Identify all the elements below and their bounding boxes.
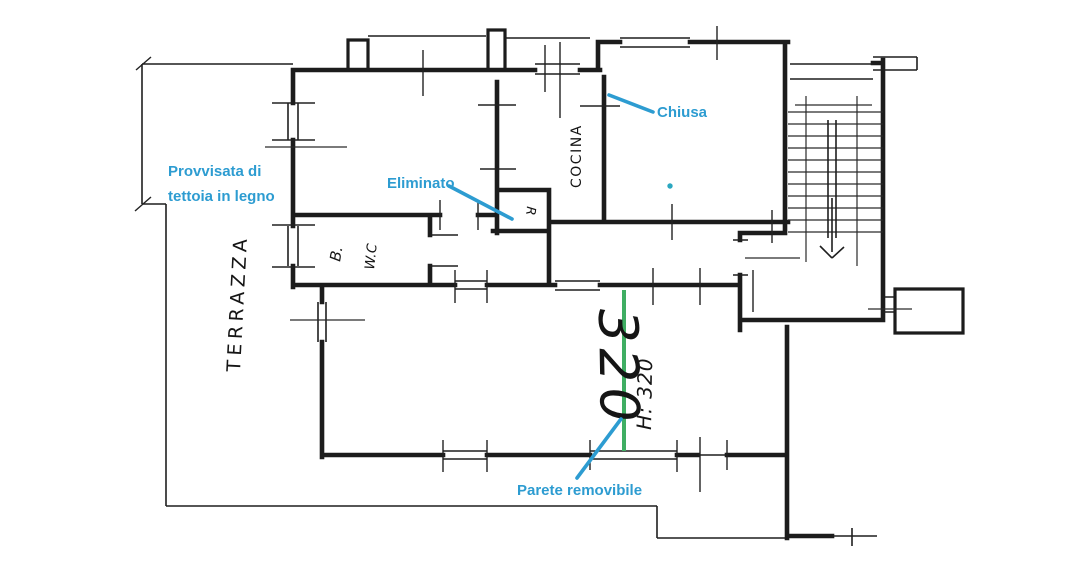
- room-labels: TERRAZZA COCINA B. W.C R: [223, 124, 585, 373]
- canopy-note-line1: Provvisata di: [168, 163, 261, 180]
- wc-label: W.C: [362, 242, 381, 270]
- marker-dot: [667, 183, 672, 188]
- dimension-arrow-marks: [135, 57, 151, 211]
- rear-balcony: [895, 289, 963, 333]
- canopy-note-line2: tettoia in legno: [168, 188, 275, 205]
- bath-label: B.: [326, 245, 346, 263]
- annotations: Provvisata di tettoia in legno Chiusa El…: [168, 95, 708, 499]
- kitchen-label: COCINA: [569, 124, 585, 188]
- storage-label: R: [522, 206, 538, 217]
- stair-direction-arrow: [820, 198, 844, 258]
- walls: [293, 30, 963, 546]
- staircase: [788, 96, 883, 266]
- terrace-label: TERRAZZA: [223, 234, 252, 373]
- removable-wall-leader-line: [577, 419, 621, 478]
- floor-plan-svg: TERRAZZA COCINA B. W.C R 320 H: 320 Prov…: [0, 0, 1080, 583]
- balcony-edge-lines: [368, 36, 590, 38]
- ceiling-height-value: H: 320: [632, 357, 657, 430]
- removable-wall-note: Parete removibile: [517, 482, 642, 499]
- closed-door-leader-line: [609, 95, 653, 112]
- measurements: 320 H: 320: [586, 308, 657, 430]
- removed-item-note: Eliminato: [387, 175, 455, 192]
- closed-door-note: Chiusa: [657, 104, 708, 121]
- bottom-right-stub: [832, 528, 877, 546]
- floor-plan-image: TERRAZZA COCINA B. W.C R 320 H: 320 Prov…: [0, 0, 1080, 583]
